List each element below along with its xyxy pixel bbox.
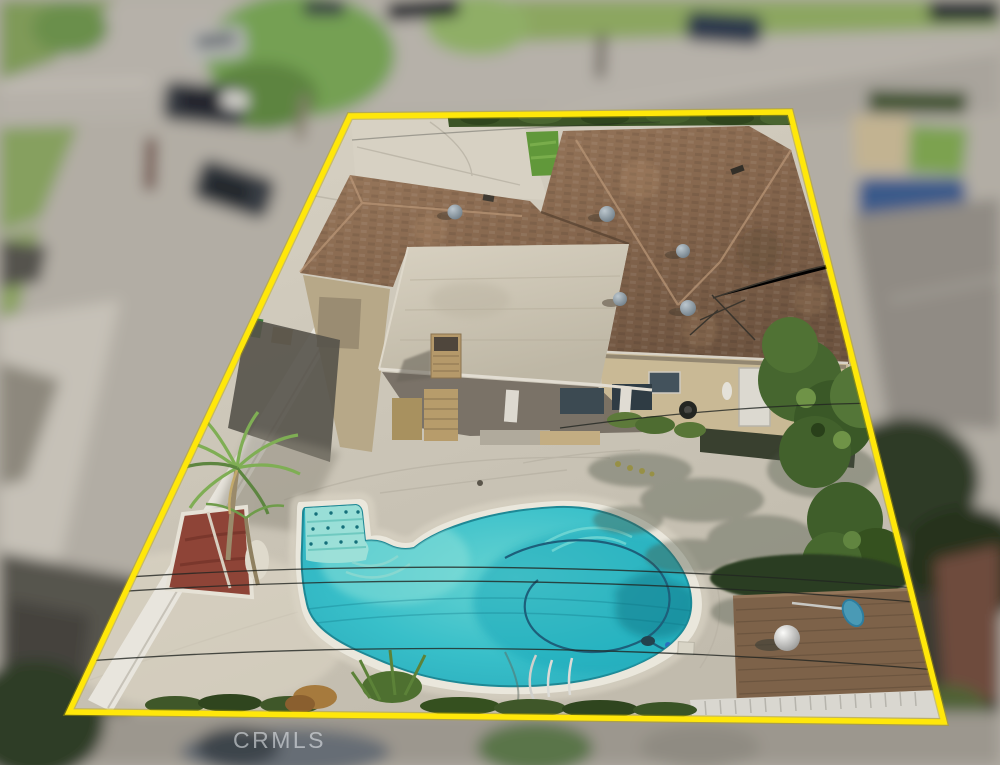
palm-canopy: [32, 2, 108, 54]
flat-roof-stain: [430, 282, 510, 318]
watermark: CRMLS: [233, 727, 326, 754]
chimney-cap: [434, 337, 458, 351]
window: [649, 372, 680, 393]
dirt-patch: [852, 115, 910, 172]
sliding-door: [560, 388, 604, 414]
car-blue: [685, 10, 763, 45]
shed-vent-sphere: [774, 625, 800, 651]
pool-cleaner-head: [641, 636, 655, 646]
car: [303, 0, 345, 16]
brick-pillar: [424, 389, 458, 441]
dry-plant: [285, 695, 315, 713]
neighbor-roof-red: [935, 545, 1000, 700]
deck-drain: [477, 480, 483, 486]
car: [928, 0, 1000, 22]
planter-box: [540, 431, 600, 445]
patio-step: [480, 430, 550, 445]
wall-lamp: [722, 382, 732, 400]
far-hedge: [868, 90, 968, 114]
brick-wall: [392, 398, 422, 440]
neighbor-lawn: [908, 125, 968, 175]
curtain: [619, 386, 632, 415]
curtain: [504, 390, 519, 423]
photo-scene: [0, 0, 1000, 765]
aerial-photo: CRMLS: [0, 0, 1000, 765]
post: [144, 138, 157, 190]
